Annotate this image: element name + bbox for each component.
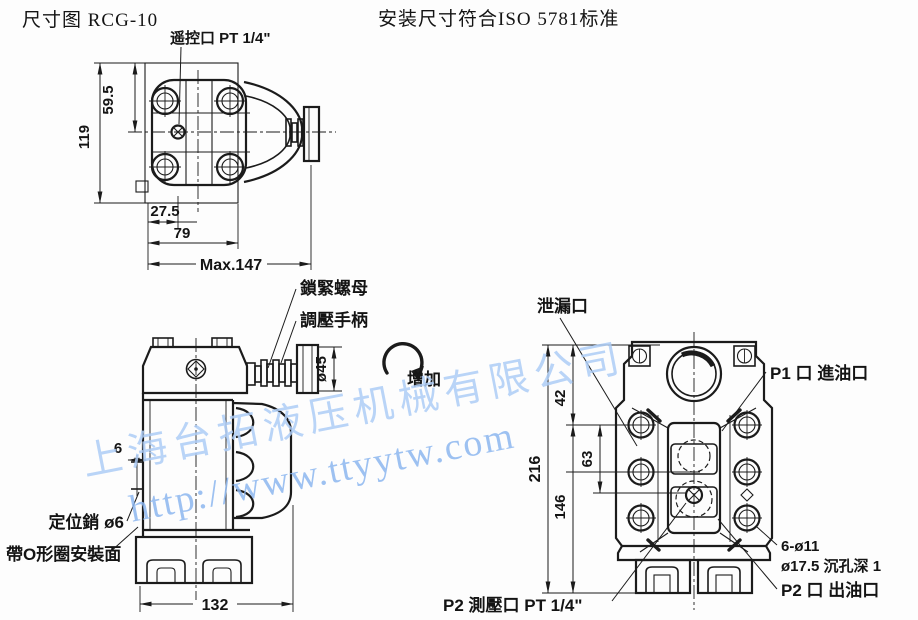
dim-146: 146 [552, 494, 569, 519]
handle-leader [281, 321, 296, 363]
handle-label: 調壓手柄 [300, 310, 368, 330]
dim-59-5: 59.5 [100, 85, 117, 114]
increase-label: 增加 [407, 369, 441, 389]
dim-max147: Max.147 [200, 257, 262, 274]
counterbore-label: ø17.5 沉孔深 1 [781, 557, 881, 575]
p2-gauge-label: P2 測壓口 PT 1/4" [443, 595, 582, 615]
front-view: 216 42 146 63 泄漏口 P1 口 進油口 6-ø11 ø17.5 沉… [443, 296, 881, 615]
remote-port-label: 遥控口 PT 1/4" [170, 29, 270, 47]
oring-face-label: 帶O形圈安裝面 [6, 544, 121, 564]
p1-port-label: P1 口 進油口 [770, 363, 868, 383]
bolt-holes-label: 6-ø11 [781, 538, 819, 555]
dim-132: 132 [202, 597, 229, 614]
dim-6: 6 [114, 440, 122, 457]
lock-nut-label: 鎖緊螺母 [300, 278, 368, 298]
dim-42: 42 [552, 390, 569, 407]
front-view-dimensions: 216 42 146 63 [527, 345, 686, 593]
lock-nut-leader [268, 289, 296, 368]
dim-27-5: 27.5 [150, 203, 179, 220]
page-title: 尺寸图 RCG-10 [22, 9, 158, 31]
technical-drawing: 尺寸图 RCG-10 安装尺寸符合ISO 5781标准 [0, 0, 918, 620]
top-view-bolts [149, 85, 246, 183]
dim-63: 63 [579, 451, 596, 468]
dim-45: ø45 [313, 356, 330, 382]
pin-leader [127, 492, 139, 521]
standard-note: 安装尺寸符合ISO 5781标准 [378, 8, 619, 30]
leak-port-label: 泄漏口 [537, 296, 588, 316]
bolt-holes-leader [757, 527, 777, 545]
leak-port-leader [560, 318, 637, 446]
dimension-drawing-page: 尺寸图 RCG-10 安装尺寸符合ISO 5781标准 [0, 0, 918, 620]
top-view: 遥控口 PT 1/4" 119 59.5 27.5 79 Max.147 [76, 29, 336, 274]
side-view: 6 ø45 132 鎖緊螺母 調壓手柄 定位銷 ø6 帶O形圈安裝面 增加 [6, 278, 441, 614]
dim-216: 216 [527, 456, 544, 483]
pin-label: 定位銷 ø6 [48, 512, 124, 532]
dim-119: 119 [76, 125, 93, 149]
dim-79: 79 [174, 225, 191, 242]
p2-out-label: P2 口 出油口 [781, 580, 879, 600]
